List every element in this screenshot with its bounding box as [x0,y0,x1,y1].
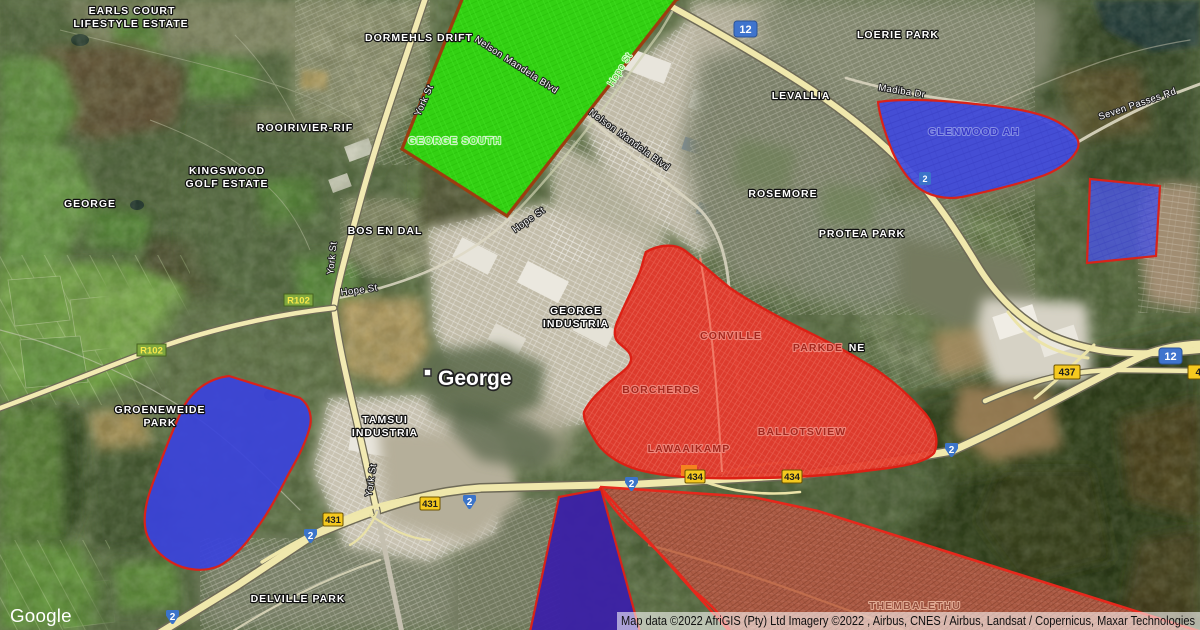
svg-text:434: 434 [687,472,704,483]
svg-text:12: 12 [739,24,751,36]
svg-text:DORMEHLS DRIFT: DORMEHLS DRIFT [365,32,473,44]
svg-text:BALLOTSVIEW: BALLOTSVIEW [758,426,847,438]
svg-text:R102: R102 [287,296,310,307]
svg-text:EARLS COURT: EARLS COURT [89,5,176,17]
svg-text:PARKDE: PARKDE [793,342,843,354]
svg-text:GEORGE: GEORGE [64,198,116,210]
svg-text:NE: NE [849,342,866,354]
svg-text:THEMBALETHU: THEMBALETHU [869,600,961,612]
svg-text:2: 2 [170,612,176,623]
svg-text:ROOIRIVIER-RIF: ROOIRIVIER-RIF [257,122,353,134]
svg-text:DELVILLE PARK: DELVILLE PARK [251,593,346,605]
svg-text:Google: Google [10,605,72,626]
svg-text:TAMSUI: TAMSUI [362,414,407,426]
svg-text:PARK: PARK [144,417,177,429]
svg-text:2: 2 [949,445,955,456]
svg-text:INDUSTRIA: INDUSTRIA [352,427,418,439]
svg-text:437: 437 [1059,368,1076,379]
svg-text:434: 434 [784,472,801,483]
svg-text:INDUSTRIA: INDUSTRIA [543,318,609,330]
svg-text:431: 431 [325,515,342,526]
svg-text:BORCHERDS: BORCHERDS [622,384,700,396]
svg-text:43: 43 [1195,368,1200,379]
svg-text:GLENWOOD AH: GLENWOOD AH [928,126,1020,138]
svg-text:GEORGE: GEORGE [550,305,602,317]
svg-text:Map data ©2022 AfriGIS (Pty) L: Map data ©2022 AfriGIS (Pty) Ltd Imagery… [621,614,1195,628]
svg-text:PROTEA PARK: PROTEA PARK [819,228,905,240]
svg-text:GOLF ESTATE: GOLF ESTATE [186,178,269,190]
svg-text:KINGSWOOD: KINGSWOOD [189,165,265,177]
svg-text:LIFESTYLE ESTATE: LIFESTYLE ESTATE [73,18,188,30]
svg-text:2: 2 [308,531,314,542]
svg-text:GEORGE SOUTH: GEORGE SOUTH [408,136,502,147]
svg-text:2: 2 [922,174,927,184]
svg-text:2: 2 [467,497,473,508]
svg-text:CONVILLE: CONVILLE [700,330,762,342]
svg-text:GROENEWEIDE: GROENEWEIDE [115,404,206,416]
svg-text:12: 12 [1164,351,1176,363]
svg-text:LEVALLIA: LEVALLIA [772,90,831,102]
svg-text:BOS EN DAL: BOS EN DAL [348,225,423,237]
svg-text:George: George [438,367,512,390]
svg-text:LAWAAIKAMP: LAWAAIKAMP [648,443,731,455]
svg-text:R102: R102 [140,346,163,357]
svg-text:431: 431 [422,499,439,510]
svg-text:2: 2 [629,479,635,490]
svg-text:ROSEMORE: ROSEMORE [748,188,817,200]
svg-text:LOERIE PARK: LOERIE PARK [857,29,939,41]
